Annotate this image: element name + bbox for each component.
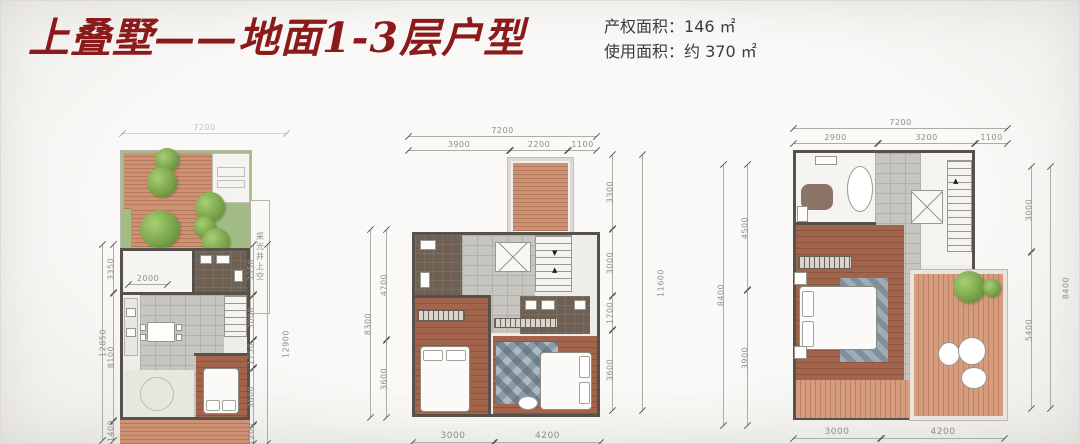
dim-label: 3600 xyxy=(606,359,615,381)
kitchen-sink xyxy=(126,328,136,337)
stair-arrow-icon: ▲ xyxy=(552,267,557,274)
pillow xyxy=(802,321,814,347)
sink xyxy=(200,255,212,264)
nightstand xyxy=(794,272,807,285)
dim-label: 2200 xyxy=(528,140,550,149)
dim-label: 3350 xyxy=(107,258,116,280)
dim-label: 2900 xyxy=(824,133,846,142)
dim-vertical: 1700 xyxy=(612,296,613,330)
pillow xyxy=(222,400,236,411)
chair xyxy=(176,334,182,341)
dim-label: 8300 xyxy=(364,312,373,334)
page-title: 上叠墅——地面1-3层户型 xyxy=(28,4,525,64)
tree xyxy=(140,210,180,248)
dim-vertical: 3600 xyxy=(612,330,613,410)
dim-label: 3000 xyxy=(1025,198,1034,220)
dim-horizontal: 2000 xyxy=(128,284,168,285)
kitchen-counter xyxy=(124,298,138,356)
pergola xyxy=(217,180,245,188)
chair xyxy=(176,324,182,331)
dim-horizontal: 2900 xyxy=(793,143,878,144)
dim-vertical: 8100 xyxy=(113,293,114,421)
dim-vertical: 12850 xyxy=(102,245,103,440)
interior-wall xyxy=(488,298,491,417)
dim-label: 3000 xyxy=(247,306,256,328)
dim-label: 1200 xyxy=(247,423,256,444)
dim-vertical: 3000 xyxy=(1031,167,1032,252)
area-info: 产权面积：146 ㎡ 使用面积：约 370 ㎡ xyxy=(604,15,757,65)
property-area-value: 146 ㎡ xyxy=(684,17,736,36)
pergola xyxy=(217,167,245,177)
stairs xyxy=(947,160,972,252)
dim-label: 3600 xyxy=(380,367,389,389)
floor-plan-middle-level: 7200 3900 2200 1100 ▼ ▲ xyxy=(360,122,670,444)
washer xyxy=(216,255,230,264)
toilet xyxy=(574,300,586,310)
dim-label: 4700 xyxy=(380,274,389,296)
table xyxy=(958,337,986,365)
property-area-label: 产权面积： xyxy=(604,17,684,36)
usable-area-label: 使用面积： xyxy=(604,42,684,61)
stair-arrow-icon: ▲ xyxy=(953,178,958,185)
dim-vertical: 11600 xyxy=(642,155,643,410)
bathtub xyxy=(541,300,555,310)
pillow xyxy=(579,356,590,378)
dim-label: 4200 xyxy=(535,431,560,441)
dim-label: 3200 xyxy=(915,133,937,142)
dim-vertical: 3900 xyxy=(747,290,748,425)
pillow xyxy=(423,350,443,361)
toilet xyxy=(797,206,808,222)
dim-label: 7200 xyxy=(193,123,215,132)
dim-horizontal: 1100 xyxy=(975,143,1008,144)
dim-vertical: 8400 xyxy=(723,165,724,425)
property-area-row: 产权面积：146 ㎡ xyxy=(604,15,757,40)
dim-vertical: 1400 xyxy=(113,421,114,440)
dim-label: 11600 xyxy=(656,269,665,297)
dim-vertical: 3300 xyxy=(612,155,613,229)
dining-table xyxy=(147,322,175,342)
cooktop xyxy=(126,308,136,317)
dim-label: 1700 xyxy=(606,302,615,324)
stairs xyxy=(535,235,572,292)
terrace-deck xyxy=(796,380,910,418)
dim-horizontal: 4200 xyxy=(494,442,601,443)
floor-plan-top-level: 7200 2900 3200 1100 ▲ 8400 xyxy=(715,110,1075,444)
dim-label: 3350 xyxy=(247,259,256,281)
dim-label: 8100 xyxy=(107,346,116,368)
dim-label: 1400 xyxy=(107,419,116,441)
bathtub xyxy=(847,166,873,212)
dim-horizontal: 1100 xyxy=(568,150,597,151)
tree xyxy=(147,167,177,197)
dim-label: 12900 xyxy=(281,330,290,358)
balcony-deck xyxy=(120,420,250,444)
dim-label: 2000 xyxy=(137,274,159,283)
pillow xyxy=(446,350,466,361)
dim-label: 7200 xyxy=(491,126,513,135)
wardrobe xyxy=(417,310,465,321)
dim-vertical: 3600 xyxy=(386,340,387,417)
sink xyxy=(525,300,537,310)
dim-label: 3300 xyxy=(606,181,615,203)
wardrobe xyxy=(494,318,558,328)
dim-label: 1100 xyxy=(980,133,1002,142)
light-well-shaft xyxy=(495,242,531,272)
dim-label: 4500 xyxy=(741,216,750,238)
toilet xyxy=(234,270,243,282)
dim-horizontal: 2200 xyxy=(510,150,568,151)
dim-horizontal: 7200 xyxy=(793,128,1008,129)
dim-vertical: 5400 xyxy=(1031,252,1032,408)
dim-horizontal: 3200 xyxy=(878,143,975,144)
wardrobe xyxy=(798,256,852,269)
stairs xyxy=(224,295,247,337)
pillow xyxy=(206,400,220,411)
chair xyxy=(961,367,987,389)
dim-vertical: 3350 xyxy=(113,245,114,293)
dim-label: 3000 xyxy=(606,251,615,273)
usable-area-value: 约 370 ㎡ xyxy=(684,42,757,61)
dim-label: 5400 xyxy=(1025,319,1034,341)
dim-vertical: 4500 xyxy=(747,165,748,290)
dim-vertical: 8300 xyxy=(370,230,371,417)
pillow xyxy=(802,291,814,317)
interior-wall xyxy=(192,248,195,295)
light-well-shaft xyxy=(911,190,943,224)
dim-label: 3000 xyxy=(441,431,466,441)
nightstand xyxy=(794,346,807,359)
dim-label: 7200 xyxy=(889,118,911,127)
dim-vertical: 3350 xyxy=(253,245,254,295)
stair-arrow-icon: ▼ xyxy=(552,250,557,257)
usable-area-row: 使用面积：约 370 ㎡ xyxy=(604,40,757,65)
tree xyxy=(953,271,985,303)
cabinet xyxy=(420,272,430,288)
dim-vertical: 3000 xyxy=(253,295,254,340)
chair xyxy=(140,324,146,331)
terrace-deck xyxy=(513,163,568,231)
dim-vertical: 4700 xyxy=(386,230,387,340)
dim-vertical: 1200 xyxy=(253,425,254,443)
dim-vertical: 3600 xyxy=(253,368,254,425)
dim-vertical: 8400 xyxy=(1050,167,1051,408)
round-tub xyxy=(140,377,174,411)
laundry-basin xyxy=(518,396,538,410)
dim-label: 3000 xyxy=(825,427,850,437)
dim-horizontal: 7200 xyxy=(408,136,597,137)
dim-label: 8400 xyxy=(717,284,726,306)
entry-room xyxy=(124,251,192,293)
dim-horizontal: 3900 xyxy=(408,150,510,151)
sink xyxy=(815,156,837,165)
dim-label: 1750 xyxy=(247,343,256,365)
dim-horizontal: 4200 xyxy=(881,438,1005,439)
dim-horizontal: 3000 xyxy=(793,438,881,439)
tree xyxy=(983,279,1001,297)
pillow xyxy=(579,382,590,404)
dim-label: 3600 xyxy=(247,385,256,407)
dim-vertical: 1750 xyxy=(253,340,254,368)
dim-vertical: 3000 xyxy=(612,229,613,296)
chair xyxy=(140,334,146,341)
dim-horizontal: 3000 xyxy=(412,442,494,443)
dim-label: 8400 xyxy=(1062,276,1071,298)
chair xyxy=(938,342,960,366)
dim-label: 3900 xyxy=(448,140,470,149)
floor-plan-page: 上叠墅——地面1-3层户型 产权面积：146 ㎡ 使用面积：约 370 ㎡ 72… xyxy=(0,0,1080,444)
light-well-label: 采光井上空 xyxy=(255,232,266,282)
dim-label: 4200 xyxy=(931,427,956,437)
cabinet xyxy=(420,240,436,250)
dim-label: 1100 xyxy=(571,140,593,149)
dim-vertical: 12900 xyxy=(267,245,268,443)
dim-horizontal: 7200 xyxy=(122,133,287,134)
dim-label: 3900 xyxy=(741,346,750,368)
